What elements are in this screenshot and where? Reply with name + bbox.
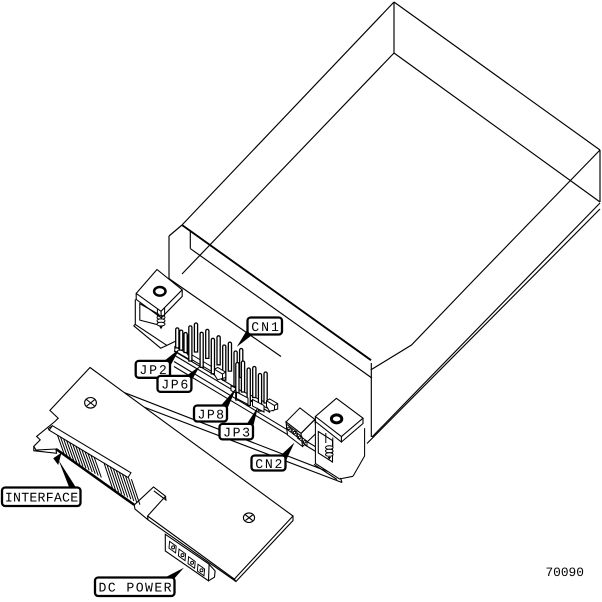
svg-text:JP3: JP3 bbox=[223, 425, 251, 440]
svg-text:CN1: CN1 bbox=[251, 320, 280, 335]
svg-text:DC POWER: DC POWER bbox=[99, 581, 173, 596]
svg-text:70090: 70090 bbox=[546, 565, 584, 580]
svg-text:INTERFACE: INTERFACE bbox=[5, 491, 78, 506]
svg-text:CN2: CN2 bbox=[255, 457, 284, 472]
svg-text:JP6: JP6 bbox=[161, 378, 190, 393]
svg-text:JP8: JP8 bbox=[198, 407, 226, 422]
